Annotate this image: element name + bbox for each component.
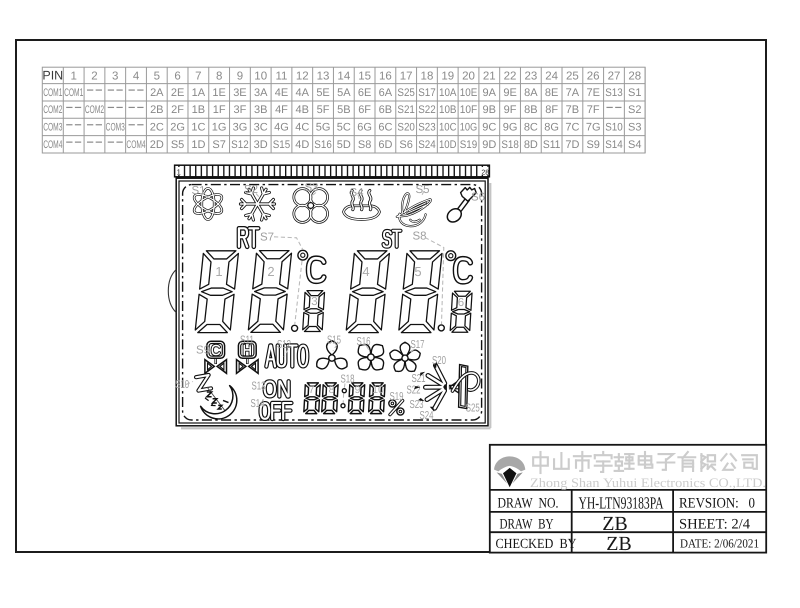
svg-text:9C: 9C — [482, 122, 496, 134]
svg-text:S9: S9 — [586, 139, 599, 151]
svg-text:8: 8 — [329, 384, 335, 396]
svg-text:10A: 10A — [439, 87, 457, 99]
svg-text:YH-LTN93183PA: YH-LTN93183PA — [579, 494, 664, 513]
svg-text:9B: 9B — [483, 104, 496, 116]
svg-text:4F: 4F — [275, 104, 288, 116]
svg-text:4D: 4D — [295, 139, 309, 151]
svg-text:S13: S13 — [605, 87, 623, 99]
svg-text:S7: S7 — [212, 139, 225, 151]
svg-text:6: 6 — [458, 297, 464, 309]
svg-text:S3: S3 — [305, 182, 319, 194]
svg-text:6A: 6A — [379, 87, 393, 99]
svg-text:S4: S4 — [350, 187, 365, 199]
svg-text:5D: 5D — [337, 139, 351, 151]
svg-text:S24: S24 — [420, 410, 434, 422]
svg-text:7G: 7G — [586, 122, 601, 134]
svg-text:4G: 4G — [274, 122, 289, 134]
svg-text:S18: S18 — [341, 373, 355, 385]
svg-text:S20: S20 — [397, 122, 415, 134]
svg-text:S6: S6 — [471, 192, 485, 204]
svg-text:ZB: ZB — [606, 533, 632, 555]
svg-text:1G: 1G — [212, 122, 227, 134]
svg-text:1A: 1A — [192, 87, 206, 99]
svg-text:REVSION: 0: REVSION: 0 — [679, 496, 755, 512]
svg-text:3C: 3C — [254, 122, 268, 134]
svg-text:S11: S11 — [543, 139, 561, 151]
svg-text:S1: S1 — [192, 185, 206, 197]
svg-text:19: 19 — [441, 70, 454, 82]
svg-text:S11: S11 — [240, 335, 254, 347]
svg-text:9: 9 — [355, 384, 361, 396]
svg-text:7: 7 — [195, 70, 201, 82]
svg-text:DRAW BY: DRAW BY — [500, 517, 554, 533]
svg-text:20: 20 — [462, 70, 475, 82]
svg-text:21: 21 — [483, 70, 496, 82]
svg-text:4C: 4C — [295, 122, 309, 134]
svg-text:3A: 3A — [254, 87, 268, 99]
svg-text:COM2: COM2 — [43, 104, 62, 116]
svg-text:6C: 6C — [378, 122, 392, 134]
svg-text:1B: 1B — [192, 104, 205, 116]
svg-text:PIN: PIN — [42, 68, 63, 82]
svg-text:8F: 8F — [545, 104, 558, 116]
svg-text:9G: 9G — [503, 122, 518, 134]
svg-text:24: 24 — [545, 70, 558, 82]
svg-text:10F: 10F — [460, 104, 478, 116]
svg-text:S25: S25 — [466, 403, 480, 415]
svg-text:2E: 2E — [171, 87, 184, 99]
svg-text:2C: 2C — [150, 122, 164, 134]
svg-text:S25: S25 — [397, 87, 415, 99]
svg-text:3F: 3F — [234, 104, 247, 116]
svg-text:12: 12 — [296, 70, 309, 82]
svg-text:2G: 2G — [170, 122, 185, 134]
svg-text:S14: S14 — [605, 139, 623, 151]
svg-text:5: 5 — [154, 70, 160, 82]
svg-text:28: 28 — [628, 70, 641, 82]
svg-text:26: 26 — [587, 70, 600, 82]
svg-text:10D: 10D — [439, 139, 457, 151]
svg-text:8: 8 — [216, 70, 222, 82]
svg-text:3: 3 — [311, 296, 317, 308]
svg-text:5E: 5E — [316, 87, 329, 99]
svg-text:8G: 8G — [544, 122, 559, 134]
svg-text:8E: 8E — [545, 87, 558, 99]
svg-text:COM3: COM3 — [106, 122, 125, 134]
svg-text:25: 25 — [566, 70, 579, 82]
svg-text:9D: 9D — [482, 139, 496, 151]
svg-text:11: 11 — [276, 70, 288, 82]
svg-text:COM4: COM4 — [43, 139, 62, 151]
svg-text:S15: S15 — [327, 335, 341, 347]
svg-text:5A: 5A — [337, 87, 351, 99]
svg-text:S6: S6 — [399, 139, 412, 151]
svg-text:5F: 5F — [317, 104, 330, 116]
svg-text:S10: S10 — [175, 379, 189, 391]
svg-text:S4: S4 — [628, 139, 641, 151]
svg-text:6F: 6F — [358, 104, 371, 116]
svg-text:4E: 4E — [275, 87, 288, 99]
svg-text:9A: 9A — [483, 87, 497, 99]
svg-text:23: 23 — [524, 70, 537, 82]
svg-text:S3: S3 — [628, 122, 641, 134]
svg-text:10C: 10C — [439, 122, 457, 134]
svg-text:S16: S16 — [314, 139, 332, 151]
svg-text:7B: 7B — [566, 104, 579, 116]
svg-text:S21: S21 — [412, 373, 426, 385]
svg-text:22: 22 — [504, 70, 517, 82]
svg-text:S23: S23 — [418, 122, 436, 134]
svg-text:DRAW NO.: DRAW NO. — [498, 496, 559, 512]
svg-text:7F: 7F — [587, 104, 600, 116]
svg-text:9F: 9F — [504, 104, 517, 116]
svg-text:S18: S18 — [501, 139, 519, 151]
svg-text:S7: S7 — [260, 232, 274, 244]
svg-text:27: 27 — [608, 70, 621, 82]
svg-text:S8: S8 — [413, 231, 427, 243]
svg-text:4: 4 — [362, 264, 369, 279]
svg-text:S2: S2 — [628, 104, 641, 116]
svg-text:2A: 2A — [150, 87, 164, 99]
svg-text:1C: 1C — [191, 122, 205, 134]
svg-text:2: 2 — [91, 70, 97, 82]
svg-text:7C: 7C — [565, 122, 579, 134]
svg-text:7A: 7A — [566, 87, 580, 99]
svg-text:6B: 6B — [379, 104, 392, 116]
svg-text:DATE: 2/06/2021: DATE: 2/06/2021 — [680, 537, 759, 551]
svg-text:10: 10 — [254, 70, 267, 82]
svg-text:S12: S12 — [277, 339, 291, 351]
svg-text:5: 5 — [414, 264, 421, 279]
svg-text:8B: 8B — [524, 104, 537, 116]
svg-text:S14: S14 — [251, 398, 265, 410]
svg-text:COM1: COM1 — [64, 87, 83, 99]
svg-text:COM3: COM3 — [43, 122, 62, 134]
svg-text:1: 1 — [215, 264, 222, 279]
svg-text:Zhong Shan Yuhui Electronics C: Zhong Shan Yuhui Electronics CO.,LTD. — [530, 475, 766, 490]
svg-text:ZB: ZB — [602, 513, 628, 535]
svg-text:3: 3 — [112, 70, 118, 82]
svg-text:S17: S17 — [418, 87, 436, 99]
svg-text:2: 2 — [267, 264, 274, 279]
svg-text:2F: 2F — [171, 104, 184, 116]
svg-text:9: 9 — [237, 70, 243, 82]
svg-text:S20: S20 — [432, 355, 446, 367]
svg-text:5B: 5B — [337, 104, 350, 116]
svg-text:7E: 7E — [586, 87, 599, 99]
svg-text:13: 13 — [317, 70, 330, 82]
svg-text:5C: 5C — [337, 122, 351, 134]
svg-text:6: 6 — [174, 70, 180, 82]
svg-text:6D: 6D — [378, 139, 392, 151]
svg-text:15: 15 — [358, 70, 371, 82]
svg-text:S1: S1 — [628, 87, 641, 99]
svg-text:S15: S15 — [273, 139, 291, 151]
svg-text:9E: 9E — [503, 87, 516, 99]
svg-text:3D: 3D — [254, 139, 268, 151]
svg-text:COM4: COM4 — [126, 139, 145, 151]
svg-text:14: 14 — [337, 70, 350, 82]
svg-text:S22: S22 — [407, 385, 421, 397]
svg-text:S22: S22 — [418, 104, 436, 116]
svg-text:S10: S10 — [605, 122, 623, 134]
svg-text:3B: 3B — [254, 104, 267, 116]
svg-text:16: 16 — [379, 70, 392, 82]
svg-text:S8: S8 — [358, 139, 371, 151]
svg-text:10B: 10B — [439, 104, 457, 116]
svg-text:10E: 10E — [460, 87, 478, 99]
svg-text:7D: 7D — [565, 139, 579, 151]
svg-text:S24: S24 — [418, 139, 436, 151]
svg-text:17: 17 — [400, 70, 413, 82]
svg-text:6G: 6G — [357, 122, 372, 134]
svg-text:8A: 8A — [524, 87, 538, 99]
svg-text:S16: S16 — [357, 336, 371, 348]
svg-text:10: 10 — [372, 384, 384, 396]
svg-text:S17: S17 — [411, 339, 425, 351]
svg-text:18: 18 — [421, 70, 434, 82]
svg-text:SHEET: 2/4: SHEET: 2/4 — [679, 517, 751, 533]
svg-text:28: 28 — [481, 169, 489, 176]
svg-text:S5: S5 — [171, 139, 184, 151]
svg-text:3E: 3E — [233, 87, 246, 99]
svg-text:COM2: COM2 — [85, 104, 104, 116]
svg-text:4A: 4A — [296, 87, 310, 99]
svg-text:4B: 4B — [296, 104, 309, 116]
svg-text:8C: 8C — [524, 122, 538, 134]
svg-text:S12: S12 — [231, 139, 249, 151]
svg-text:S21: S21 — [397, 104, 415, 116]
svg-text:CHECKED BY: CHECKED BY — [496, 537, 577, 552]
svg-text:2D: 2D — [150, 139, 164, 151]
svg-text:S19: S19 — [460, 139, 478, 151]
svg-text:1D: 1D — [191, 139, 205, 151]
svg-text:4: 4 — [133, 70, 140, 82]
svg-text:1E: 1E — [212, 87, 225, 99]
svg-text:10G: 10G — [460, 122, 478, 134]
svg-text:COM1: COM1 — [43, 87, 62, 99]
svg-text:S19: S19 — [390, 391, 404, 403]
svg-text:8D: 8D — [524, 139, 538, 151]
svg-text:5G: 5G — [316, 122, 331, 134]
svg-text:3G: 3G — [233, 122, 248, 134]
svg-text:1: 1 — [177, 168, 181, 177]
svg-text:6E: 6E — [358, 87, 371, 99]
svg-text:1: 1 — [70, 70, 76, 82]
svg-text:7: 7 — [309, 384, 315, 396]
svg-text:1F: 1F — [213, 104, 226, 116]
svg-text:2B: 2B — [150, 104, 163, 116]
